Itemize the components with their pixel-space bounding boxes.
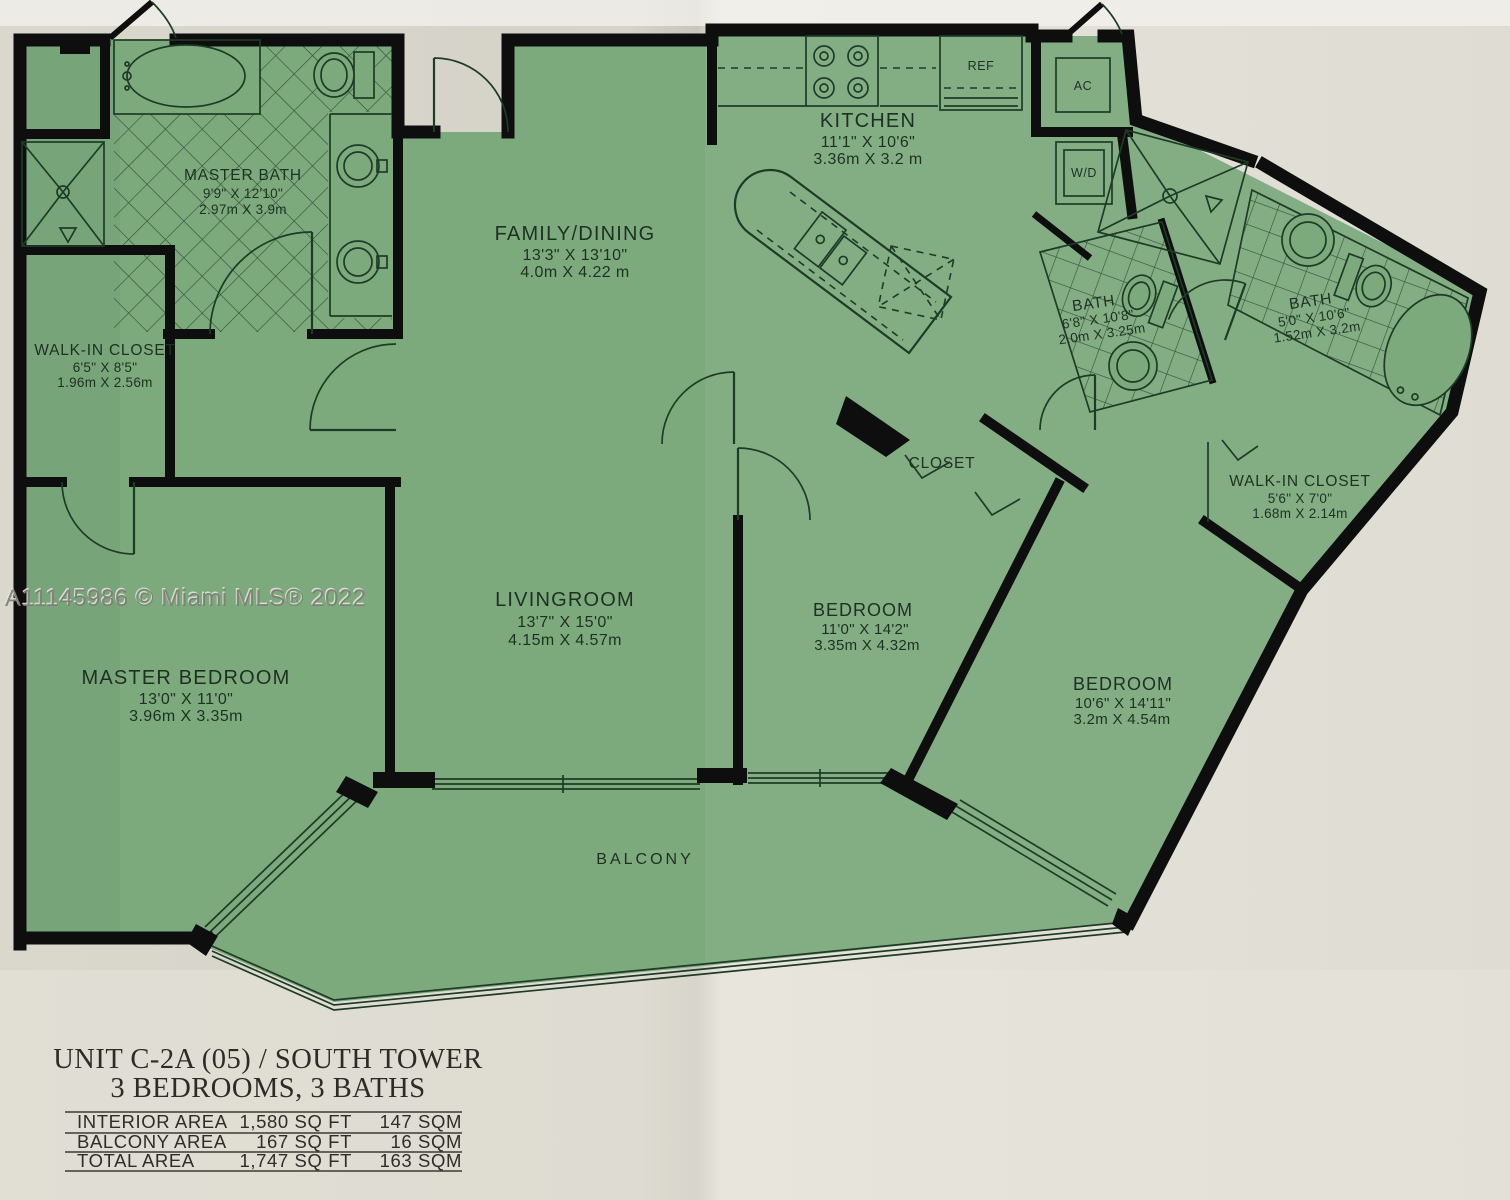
room-label-livingroom: LIVINGROOM [495, 589, 635, 611]
ref-label: REF [968, 59, 995, 73]
mls-watermark: A11145986 © Miami MLS® 2022 [5, 585, 367, 612]
table-row-label: TOTAL AREA [77, 1150, 195, 1171]
table-row-label: BALCONY AREA [77, 1131, 227, 1152]
room-dims-m: 1.68m X 2.14m [1252, 506, 1347, 521]
room-dims-m: 3.96m X 3.35m [129, 708, 243, 725]
table-row-sqft: 167 SQ FT [256, 1131, 352, 1152]
room-dims-ft: 13'7" X 15'0" [517, 614, 613, 631]
room-dims-m: 3.2m X 4.54m [1074, 711, 1171, 728]
unit-title: UNIT C-2A (05) / SOUTH TOWER [53, 1044, 483, 1075]
room-dims-ft: 6'5" X 8'5" [73, 360, 138, 375]
unit-subtitle: 3 BEDROOMS, 3 BATHS [110, 1073, 425, 1104]
room-label-walkin-closet-left: WALK-IN CLOSET [34, 342, 176, 359]
table-row-sqm: 147 SQM [380, 1111, 462, 1132]
table-row-sqm: 16 SQM [391, 1131, 462, 1152]
room-label-closet: CLOSET [909, 455, 976, 472]
table-row-sqft: 1,747 SQ FT [239, 1150, 352, 1171]
room-label-family-dining: FAMILY/DINING [495, 223, 656, 245]
room-label-master-bedroom: MASTER BEDROOM [81, 667, 290, 689]
room-dims-ft: 11'0" X 14'2" [821, 621, 909, 638]
room-dims-ft: 13'3" X 13'10" [523, 247, 628, 264]
table-row-label: INTERIOR AREA [77, 1111, 228, 1132]
ac-label: AC [1074, 79, 1093, 93]
room-dims-m: 2.97m X 3.9m [199, 202, 287, 217]
room-label-balcony: BALCONY [596, 851, 693, 868]
room-label-bedroom-right: BEDROOM [1073, 674, 1173, 694]
table-row-sqft: 1,580 SQ FT [239, 1111, 352, 1132]
room-dims-ft: 11'1" X 10'6" [821, 134, 915, 151]
paper-top-edge [0, 0, 1510, 26]
room-dims-m: 4.15m X 4.57m [508, 632, 622, 649]
room-label-kitchen: KITCHEN [820, 110, 916, 132]
toilet-tank-icon [354, 52, 374, 98]
floorplan-svg: MASTER BATH 9'9" X 12'10" 2.97m X 3.9m W… [0, 0, 1510, 1200]
room-label-walkin-closet-right: WALK-IN CLOSET [1229, 473, 1371, 490]
room-dims-m: 3.36m X 3.2 m [813, 151, 922, 168]
room-dims-m: 3.35m X 4.32m [814, 637, 920, 654]
room-label-bedroom-mid: BEDROOM [813, 600, 913, 620]
room-dims-m: 4.0m X 4.22 m [520, 264, 629, 281]
room-dims-ft: 5'6" X 7'0" [1268, 491, 1333, 506]
room-label-master-bath: MASTER BATH [184, 167, 302, 184]
room-dims-ft: 10'6" X 14'11" [1075, 695, 1171, 712]
room-dims-ft: 13'0" X 11'0" [139, 691, 233, 708]
room-dims-ft: 9'9" X 12'10" [203, 186, 283, 201]
area-table: INTERIOR AREA 1,580 SQ FT 147 SQM BALCON… [77, 1111, 462, 1171]
entry-wall-stub [60, 40, 90, 54]
table-row-sqm: 163 SQM [380, 1150, 462, 1171]
room-dims-m: 1.96m X 2.56m [57, 375, 152, 390]
floorplan-photo: MASTER BATH 9'9" X 12'10" 2.97m X 3.9m W… [0, 0, 1510, 1200]
bathtub-icon [127, 45, 245, 107]
wd-label: W/D [1071, 166, 1097, 180]
